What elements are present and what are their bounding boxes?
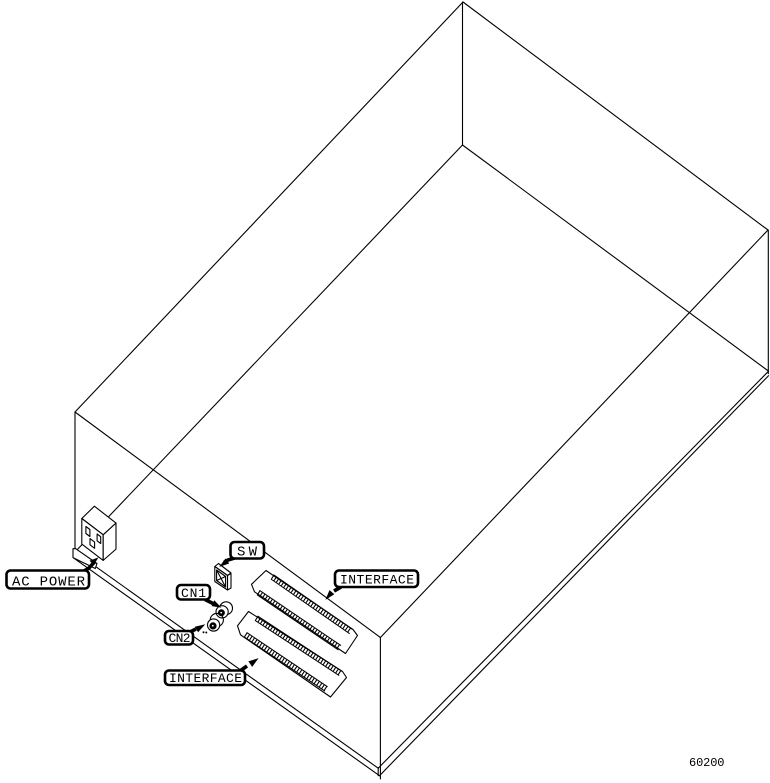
svg-text:CN1: CN1 bbox=[181, 586, 206, 601]
svg-text:INTERFACE: INTERFACE bbox=[340, 573, 414, 588]
svg-text:CN2: CN2 bbox=[169, 631, 191, 646]
svg-text:INTERFACE: INTERFACE bbox=[169, 671, 242, 686]
svg-text:60200: 60200 bbox=[689, 756, 725, 770]
svg-text:AC POWER: AC POWER bbox=[12, 575, 86, 591]
